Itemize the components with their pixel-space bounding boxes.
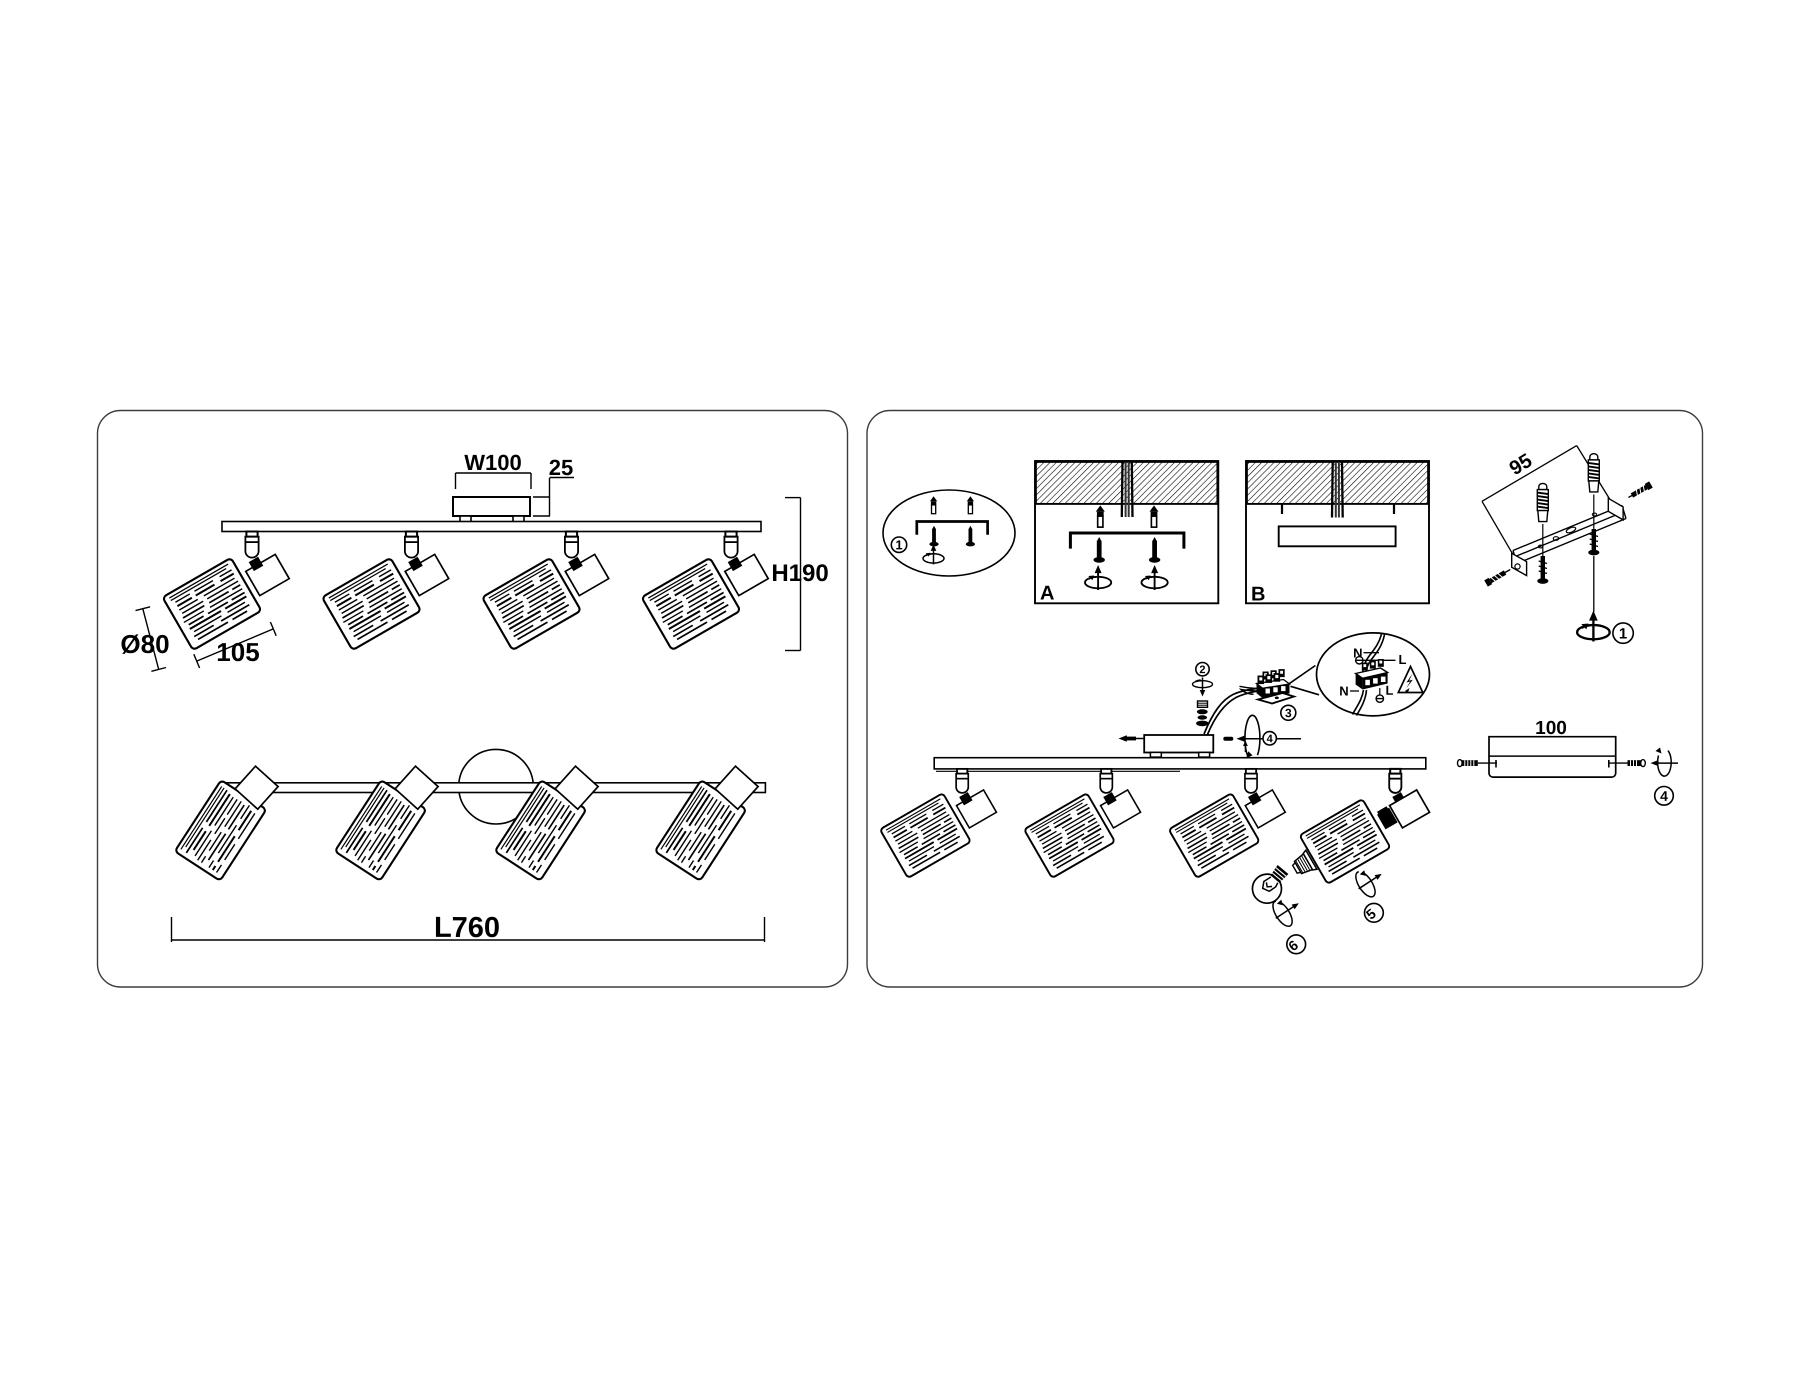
svg-text:W100: W100 [464, 450, 522, 475]
svg-text:B: B [1251, 584, 1265, 606]
svg-text:25: 25 [549, 455, 574, 480]
svg-text:L: L [1386, 683, 1394, 698]
svg-text:1: 1 [895, 537, 902, 552]
svg-text:3: 3 [1285, 706, 1292, 720]
svg-text:2: 2 [1199, 664, 1205, 676]
svg-text:A: A [1040, 583, 1054, 605]
svg-text:4: 4 [1267, 733, 1274, 745]
svg-text:Ø80: Ø80 [120, 629, 169, 659]
svg-text:N: N [1339, 683, 1348, 698]
svg-text:H190: H190 [771, 560, 828, 587]
svg-text:4: 4 [1660, 788, 1668, 804]
svg-text:L: L [1399, 652, 1407, 667]
svg-text:105: 105 [216, 637, 259, 667]
svg-text:L760: L760 [434, 912, 500, 944]
svg-text:1: 1 [1619, 625, 1627, 642]
